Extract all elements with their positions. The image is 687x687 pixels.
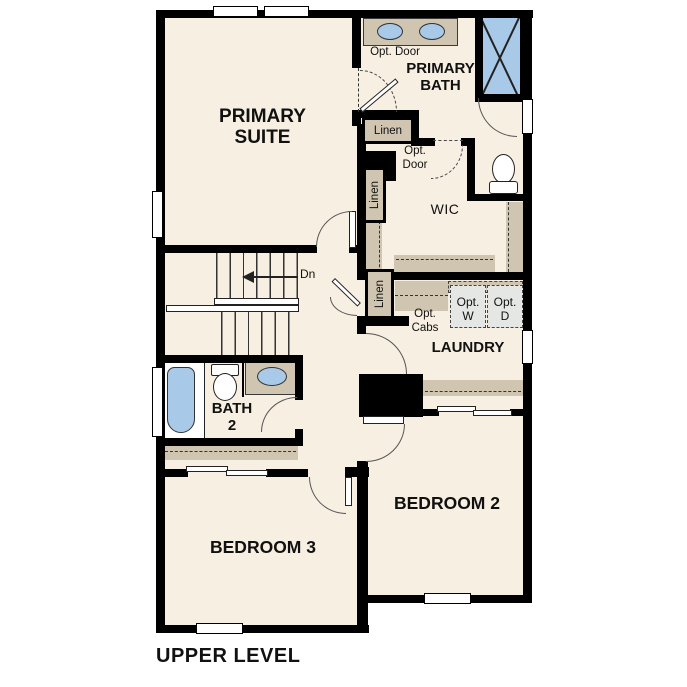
floor-plan: Opt. W Opt. D <box>0 0 687 687</box>
page-title: UPPER LEVEL <box>156 645 300 668</box>
opt-cabinets-counter <box>395 281 448 311</box>
floor-area-bedroom3 <box>163 560 359 630</box>
opt-door-label: Opt. Door <box>394 145 436 172</box>
wall-suite-south <box>156 245 317 253</box>
opt-cabs-label: Opt. Cabs <box>398 308 452 335</box>
room-label-bath2: BATH 2 <box>204 401 260 435</box>
linen-closet-hall: Linen <box>365 269 394 319</box>
counter-dash-line <box>395 295 448 296</box>
bypass-door <box>186 466 228 472</box>
room-label-bedroom3: BEDROOM 3 <box>198 538 328 558</box>
sink-basin <box>377 23 403 40</box>
wall-bath2-hall <box>295 355 303 400</box>
linen-closet-bath: Linen <box>362 117 414 144</box>
chase <box>359 374 423 417</box>
bypass-door <box>437 406 476 412</box>
bypass-door <box>473 410 512 416</box>
toilet-bowl <box>213 373 237 401</box>
window <box>522 99 533 134</box>
closet-rod-line <box>165 451 296 452</box>
closet-rod-line <box>396 259 493 260</box>
wall-bedroom3-north <box>266 469 308 477</box>
window <box>152 191 163 238</box>
wall-closet2-south <box>510 409 525 416</box>
window <box>522 330 533 364</box>
closet-shelf <box>394 255 495 272</box>
wall-toilet-room-south <box>467 194 523 201</box>
closet-rod-line <box>425 391 521 392</box>
optional-dryer-label: Opt. D <box>494 296 517 324</box>
window <box>196 623 243 634</box>
room-label-primary-bath: PRIMARY BATH <box>398 61 483 95</box>
bathtub <box>167 367 195 433</box>
linen-closet-wic: Linen <box>363 167 386 223</box>
window <box>264 6 309 17</box>
linen-label: Linen <box>374 125 402 137</box>
wall-bath2-north <box>156 355 303 363</box>
closet-rod-line <box>366 221 380 272</box>
wall-bath2-south <box>156 438 303 446</box>
closet-rod-line <box>508 202 522 272</box>
wall-bedroom-divider <box>357 461 368 633</box>
closet-shelf <box>423 380 523 396</box>
linen-label: Linen <box>374 280 386 308</box>
window <box>424 593 471 604</box>
sink-basin <box>419 23 445 40</box>
wall-left <box>156 10 165 633</box>
stair-arrow-line <box>253 276 298 278</box>
room-label-wic: WIC <box>418 202 472 218</box>
wall-suite-bath-divider <box>352 18 361 68</box>
wall-closet3-south <box>156 469 188 477</box>
toilet-bowl <box>492 154 515 184</box>
room-label-primary-suite: PRIMARY SUITE <box>185 106 340 149</box>
room-label-bedroom2: BEDROOM 2 <box>382 494 512 514</box>
fixture-divider <box>242 361 244 397</box>
window <box>152 367 163 437</box>
bypass-door <box>226 470 268 476</box>
door-opening <box>363 416 404 424</box>
opt-door-label: Opt. Door <box>362 46 428 60</box>
optional-dryer: Opt. D <box>487 285 523 328</box>
stair-arrow-head <box>242 271 254 283</box>
toilet-tank <box>489 181 518 194</box>
linen-label: Linen <box>369 181 381 209</box>
window <box>213 6 258 17</box>
stair-rail <box>214 298 299 305</box>
optional-washer-label: Opt. W <box>457 296 480 324</box>
stair-rail <box>166 305 299 312</box>
wall-closet2-south <box>417 409 439 416</box>
stair-direction-label: Dn <box>300 267 324 281</box>
wall-toilet-room-left <box>467 138 475 201</box>
sink-basin <box>257 367 287 386</box>
stair-treads-lower <box>221 312 299 356</box>
wall-bottom-bedroom3 <box>156 625 369 633</box>
door-leaf <box>345 477 352 506</box>
opt-door-line <box>433 140 463 141</box>
room-label-laundry: LAUNDRY <box>422 340 514 357</box>
optional-washer: Opt. W <box>450 285 486 328</box>
